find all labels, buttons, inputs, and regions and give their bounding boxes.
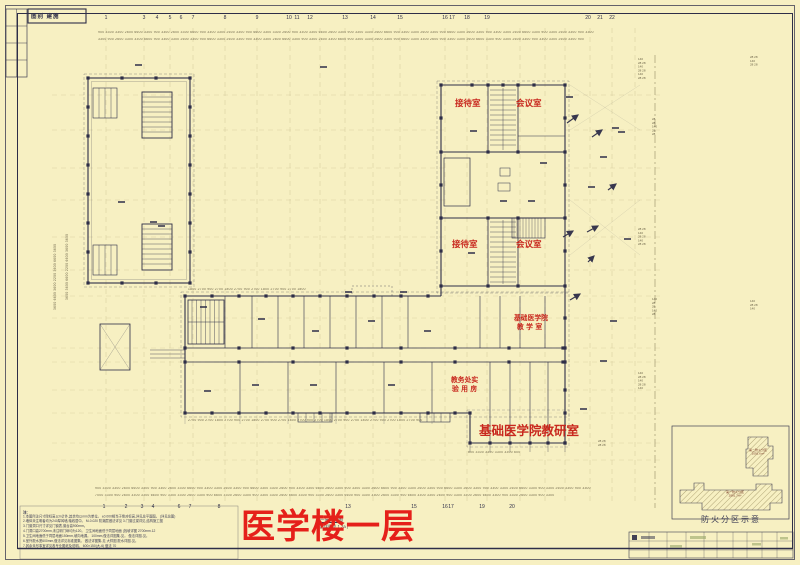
axis-number-top: 14 bbox=[370, 15, 376, 21]
axis-number-top: 18 bbox=[464, 15, 470, 21]
dim-row: 900 3300 3300 2600 6600 3300 900 3300 26… bbox=[98, 31, 594, 34]
axis-number-top: 8 bbox=[224, 15, 227, 21]
axis-number-top: 9 bbox=[256, 15, 259, 21]
dim-stack: 28 28 140 28 28 bbox=[652, 118, 657, 137]
axis-number-top: 4 bbox=[156, 15, 159, 21]
axis-number-bottom: 19 bbox=[479, 504, 485, 510]
axis-number-top: 21 bbox=[597, 15, 603, 21]
axis-number-top: 15 bbox=[397, 15, 403, 21]
general-notes: 注: 1.本图所注尺寸除标高以m计外,其余均以mm为单位。 ±0.000相当于绝… bbox=[23, 509, 243, 549]
axis-number-top: 12 bbox=[307, 15, 313, 21]
notes-lines: 1.本图所注尺寸除标高以m计外,其余均以mm为单位。 ±0.000相当于绝对标高… bbox=[23, 515, 243, 550]
axis-number-top: 3 bbox=[143, 15, 146, 21]
dim-stack: 140 28 28 140 28 bbox=[652, 298, 657, 317]
room-label: 会议室 bbox=[516, 97, 542, 109]
dim-row: 1800 2700 900 2700 1800 2700 900 2700 18… bbox=[188, 288, 306, 291]
room-label: 接待室 bbox=[452, 238, 478, 250]
axis-number-top: 19 bbox=[484, 15, 490, 21]
axis-number-top: 20 bbox=[585, 15, 591, 21]
title-stamp-text: 图别 建施 bbox=[31, 12, 60, 20]
dim-row: 600 3300 3300 3300 3300 600 bbox=[468, 451, 520, 454]
fire-zone-label: 第一防火分区 2891.7m² bbox=[700, 491, 770, 498]
dim-row: 7000 3300 900 2600 3300 3300 6600 900 33… bbox=[95, 494, 554, 497]
dim-row: 2700 900 2700 1800 2700 900 2700 1800 27… bbox=[188, 419, 422, 422]
axis-number-top: 22 bbox=[609, 15, 615, 21]
axis-number-bottom: 20 bbox=[509, 504, 515, 510]
fire-zone-label: 第二防火分区 2091.6m² bbox=[741, 449, 775, 456]
drawing-sheet: { "colors": { "paper": "#f7f0c2", "line"… bbox=[0, 0, 800, 565]
axis-number-top: 1 bbox=[105, 15, 108, 21]
dim-column: 3600 3600 6600 2200 6600 3600 3600 bbox=[66, 234, 69, 300]
dim-stack: 28 28 140 28 28 140 28 28 bbox=[638, 228, 646, 247]
annotation-overlay: 图别 建施 1345678910111213141516171819202122… bbox=[0, 0, 800, 565]
dim-row: 3300 900 2600 3300 3300 6600 900 3300 33… bbox=[98, 38, 584, 41]
dim-stack: 28 28 140 28 28 bbox=[750, 56, 758, 67]
fire-inset-caption: 防火分区示意 bbox=[701, 514, 761, 525]
axis-number-top: 17 bbox=[449, 15, 455, 21]
note-line: 7.其余未尽事宜详见各专业图纸及说明。 600×150(大-6) 做法 70 bbox=[23, 544, 243, 549]
dim-stack: 140 28 28 140 28 28 140 28 28 bbox=[638, 58, 646, 81]
axis-number-top: 10 bbox=[286, 15, 292, 21]
room-label: 验 用 房 bbox=[452, 383, 477, 393]
room-label: 教 学 室 bbox=[517, 321, 542, 331]
dim-row: 900 3300 3300 2600 6600 3300 900 3300 26… bbox=[95, 487, 591, 490]
axis-number-top: 11 bbox=[294, 15, 299, 21]
dim-stack: 140 28 28 140 28 28 140 bbox=[638, 372, 646, 391]
axis-number-top: 6 bbox=[180, 15, 183, 21]
axis-number-bottom: 16 bbox=[442, 504, 448, 510]
axis-number-bottom: 17 bbox=[448, 504, 454, 510]
dim-stack: 140 28 28 140 bbox=[750, 300, 758, 311]
dim-column: 3600 6600 3600 2200 3600 6600 3600 bbox=[54, 244, 57, 310]
sheet-title: 医学楼一层 bbox=[241, 499, 416, 548]
dim-stack: 28 28 28 28 bbox=[598, 440, 606, 448]
room-label: 基础医学院教研室 bbox=[479, 420, 579, 439]
room-label: 接待室 bbox=[455, 97, 481, 109]
axis-number-top: 16 bbox=[442, 15, 448, 21]
axis-number-top: 13 bbox=[342, 15, 348, 21]
axis-number-top: 7 bbox=[192, 15, 195, 21]
room-label: 会议室 bbox=[516, 238, 542, 250]
axis-number-top: 5 bbox=[169, 15, 172, 21]
